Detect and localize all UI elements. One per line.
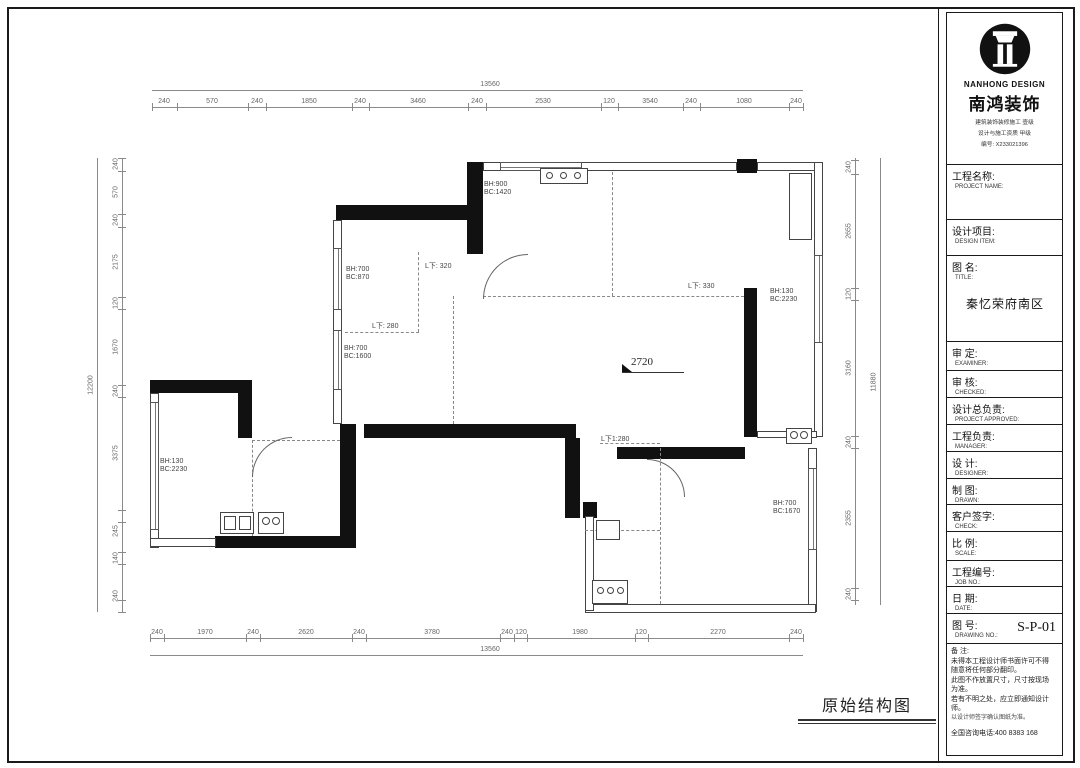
dimension-tick	[118, 522, 126, 523]
certification-lines: 建筑装饰装修施工 壹级设计与施工资质 甲级编号: X233021396	[947, 117, 1062, 148]
caption-underline	[798, 719, 936, 724]
dimension-tick	[803, 634, 804, 642]
dimension-value: 245	[113, 525, 120, 537]
window-beam-label: L下: 280	[372, 323, 398, 331]
field-label-en: TITLE:	[952, 275, 1058, 281]
dimension-value: 1980	[572, 629, 588, 636]
wall-solid	[340, 424, 356, 548]
wall-thin	[585, 604, 816, 613]
field-label-en: DESIGNER:	[952, 471, 1058, 477]
dimension-value: 2530	[535, 98, 551, 105]
dimension-value: 240	[113, 214, 120, 226]
dimension-tick	[851, 174, 859, 175]
fixture-outline	[239, 516, 251, 530]
dimension-line	[150, 655, 803, 656]
dimension-value: 1850	[301, 98, 317, 105]
dimension-value: 240	[113, 385, 120, 397]
column-logo-icon	[977, 21, 1033, 77]
fixture-outline	[789, 173, 812, 240]
dimension-value: 3460	[410, 98, 426, 105]
dimension-tick	[118, 510, 126, 511]
titleblock-row: 工程编号:JOB NO.:	[947, 561, 1062, 587]
dimension-tick	[486, 103, 487, 111]
titleblock-row: 审 定:EXAMINER:	[947, 342, 1062, 371]
wall-thin	[150, 538, 216, 547]
titleblock-row: 比 例:SCALE:	[947, 532, 1062, 561]
titleblock-row: 图 号:DRAWING NO.:S-P-01	[947, 614, 1062, 644]
dimension-tick	[266, 103, 267, 111]
fixture-circle	[560, 172, 567, 179]
dimension-value: 240	[113, 158, 120, 170]
dimension-value: 1670	[113, 339, 120, 355]
dimension-value: 240	[471, 98, 483, 105]
titleblock-row: 工程负责:MANAGER:	[947, 425, 1062, 452]
note-line: 未得本工程设计师书面许可不得	[951, 657, 1058, 667]
field-label-zh: 设 计:	[952, 455, 1058, 470]
fixture-outline	[596, 520, 620, 540]
field-label-zh: 审 定:	[952, 345, 1058, 360]
wall-solid	[336, 205, 483, 220]
dimension-tick	[851, 300, 859, 301]
fixture-circle	[607, 587, 614, 594]
dimension-value: 240	[790, 629, 802, 636]
titleblock-rows: 工程名称:PROJECT NAME:设计项目:DESIGN ITEM:图 名:T…	[947, 165, 1062, 644]
titleblock-notes: 备 注:未得本工程设计师书面许可不得随意将任何部分翻印。此图不作放置尺寸，尺寸按…	[947, 644, 1062, 755]
dimension-value: 2655	[846, 223, 853, 239]
field-label-en: PROJECT NAME:	[952, 184, 1058, 190]
fixture-circle	[272, 517, 280, 525]
window-beam-label: BH:130 BC:2230	[160, 458, 187, 474]
dimension-tick	[618, 103, 619, 111]
dimension-value: 1080	[736, 98, 752, 105]
dimension-value: 3375	[113, 445, 120, 461]
dimension-value: 240	[846, 436, 853, 448]
dimension-value: 570	[113, 186, 120, 198]
drawing-sheet: 原始结构图 BH:900 BC:1420BH:700 BC:870BH:700 …	[0, 0, 1080, 768]
dimension-value: 120	[846, 288, 853, 300]
dimension-tick	[118, 171, 126, 172]
dimension-tick	[851, 448, 859, 449]
dimension-tick	[683, 103, 684, 111]
dimension-value: 240	[501, 629, 513, 636]
note-line: 随意将任何部分翻印。	[951, 666, 1058, 676]
dimension-value: 240	[846, 588, 853, 600]
dimension-value: 3540	[642, 98, 658, 105]
window-centerline	[155, 403, 156, 529]
window-beam-label: L下1:280	[601, 436, 629, 444]
dimension-value: 3780	[424, 629, 440, 636]
drawing-caption: 原始结构图	[798, 692, 936, 724]
dimension-tick	[177, 103, 178, 111]
door-swing-arc	[252, 437, 292, 477]
window-centerline	[813, 469, 814, 549]
beam-dashed-line	[418, 252, 419, 332]
dimension-line	[150, 638, 803, 639]
line	[622, 372, 684, 373]
note-line: 全国咨询电话:400 8383 168	[951, 729, 1058, 739]
wall-solid	[238, 380, 252, 438]
dimension-line	[152, 90, 803, 91]
dimension-line	[152, 107, 803, 108]
titleblock-row: 日 期:DATE:	[947, 587, 1062, 614]
window-centerline	[819, 256, 820, 342]
titleblock-row: 客户签字:CHECK:	[947, 505, 1062, 532]
ceiling-height-label: 2720	[631, 356, 653, 368]
dimension-value: 12200	[88, 375, 95, 394]
dimension-value: 13560	[480, 646, 499, 653]
dimension-value: 240	[790, 98, 802, 105]
certification-line: 建筑装饰装修施工 壹级	[950, 117, 1059, 126]
dimension-tick	[366, 634, 367, 642]
field-label-zh: 制 图:	[952, 482, 1058, 497]
note-line: 此图不作放置尺寸，尺寸按现场	[951, 676, 1058, 686]
field-label-en: JOB NO.:	[952, 580, 1058, 586]
field-label-zh: 比 例:	[952, 535, 1058, 550]
dimension-tick	[118, 227, 126, 228]
fixture-outline	[224, 516, 236, 530]
titleblock-row: 工程名称:PROJECT NAME:	[947, 165, 1062, 220]
dimension-tick	[118, 612, 126, 613]
dimension-value: 2270	[710, 629, 726, 636]
note-line: 为准。	[951, 685, 1058, 695]
field-label-en: DRAWING NO.:	[952, 633, 998, 639]
field-label-zh: 客户签字:	[952, 508, 1058, 523]
window-beam-label: BH:700 BC:1600	[344, 345, 371, 361]
fixture-circle	[262, 517, 270, 525]
field-label-en: PROJECT APPROVED:	[952, 417, 1058, 423]
beam-dashed-line	[345, 332, 419, 333]
brand-name-zh: 南鸿装饰	[947, 90, 1062, 115]
dimension-tick	[851, 600, 859, 601]
title-block: NANHONG DESIGN 南鸿装饰 建筑装饰装修施工 壹级设计与施工资质 甲…	[946, 12, 1063, 756]
fixture-circle	[790, 431, 798, 439]
dimension-value: 120	[603, 98, 615, 105]
titleblock-row: 图 名:TITLE:秦忆荣府南区	[947, 256, 1062, 342]
field-label-en: EXAMINER:	[952, 361, 1058, 367]
field-label-zh: 图 名:	[952, 259, 1058, 274]
window-beam-label: L下: 320	[425, 263, 451, 271]
dimension-value: 1970	[197, 629, 213, 636]
dimension-tick	[118, 309, 126, 310]
field-label-en: CHECKED:	[952, 390, 1058, 396]
brand-name-en: NANHONG DESIGN	[947, 80, 1062, 89]
dimension-tick	[601, 103, 602, 111]
dimension-tick	[803, 103, 804, 111]
window-beam-label: BH:130 BC:2230	[770, 288, 797, 304]
fixture-circle	[574, 172, 581, 179]
drawing-number-value: S-P-01	[1017, 620, 1058, 636]
beam-dashed-line	[453, 296, 454, 424]
fixture-circle	[800, 431, 808, 439]
dimension-value: 2620	[298, 629, 314, 636]
dimension-value: 240	[354, 98, 366, 105]
titleblock-row: 设计项目:DESIGN ITEM:	[947, 220, 1062, 256]
field-label-en: DRAWN:	[952, 498, 1058, 504]
dimension-tick	[700, 103, 701, 111]
dimension-tick	[260, 634, 261, 642]
floor-plan: 原始结构图 BH:900 BC:1420BH:700 BC:870BH:700 …	[0, 0, 940, 768]
dimension-value: 240	[353, 629, 365, 636]
dimension-tick	[118, 564, 126, 565]
wall-solid	[737, 159, 757, 173]
beam-dashed-line	[252, 440, 340, 441]
wall-solid	[744, 288, 757, 437]
dimension-value: 11880	[871, 373, 878, 392]
dimension-tick	[164, 634, 165, 642]
titleblock-row: 制 图:DRAWN:	[947, 479, 1062, 505]
field-label-en: MANAGER:	[952, 444, 1058, 450]
field-label-en: DATE:	[952, 606, 1058, 612]
window-centerline	[338, 331, 339, 389]
wall-solid	[617, 447, 745, 459]
note-line: 若有不明之处，应立即通知设计	[951, 695, 1058, 705]
field-label-zh: 工程编号:	[952, 564, 1058, 579]
field-label-zh: 工程名称:	[952, 168, 1058, 183]
wall-thin	[757, 162, 822, 171]
dimension-value: 240	[151, 629, 163, 636]
dimension-tick	[468, 103, 469, 111]
dimension-value: 570	[206, 98, 218, 105]
field-label-en: DESIGN ITEM:	[952, 239, 1058, 245]
company-logo: NANHONG DESIGN 南鸿装饰 建筑装饰装修施工 壹级设计与施工资质 甲…	[947, 13, 1062, 165]
wall-solid	[215, 536, 356, 548]
field-label-zh: 审 核:	[952, 374, 1058, 389]
dimension-value: 120	[113, 297, 120, 309]
dimension-value: 240	[247, 629, 259, 636]
window-beam-label: BH:700 BC:1670	[773, 500, 800, 516]
field-label-zh: 设计项目:	[952, 223, 1058, 238]
wall-solid	[150, 380, 250, 393]
fixture-circle	[546, 172, 553, 179]
fixture-circle	[597, 587, 604, 594]
dimension-value: 240	[158, 98, 170, 105]
titleblock-row: 设 计:DESIGNER:	[947, 452, 1062, 479]
dimension-line	[97, 158, 98, 612]
certification-line: 设计与施工资质 甲级	[950, 128, 1059, 137]
beam-dashed-line	[612, 172, 613, 296]
project-title-value: 秦忆荣府南区	[952, 295, 1058, 312]
wall-solid	[467, 162, 483, 254]
dimension-tick	[248, 103, 249, 111]
dimension-tick	[648, 634, 649, 642]
dimension-value: 2175	[113, 254, 120, 270]
dimension-value: 3160	[846, 360, 853, 376]
dimension-value: 240	[685, 98, 697, 105]
dimension-line	[880, 158, 881, 605]
level-marker-icon	[622, 364, 632, 372]
dimension-value: 13560	[480, 81, 499, 88]
note-line: 以设计师签字确认图纸为准。	[951, 714, 1058, 724]
dimension-value: 120	[515, 629, 527, 636]
dimension-value: 240	[113, 590, 120, 602]
field-label-zh: 设计总负责:	[952, 401, 1058, 416]
window-beam-label: BH:700 BC:870	[346, 266, 369, 282]
dimension-value: 120	[635, 629, 647, 636]
dimension-tick	[118, 397, 126, 398]
dimension-value: 240	[251, 98, 263, 105]
window-centerline	[338, 249, 339, 309]
dimension-value: 140	[113, 552, 120, 564]
field-label-zh: 图 号:	[952, 617, 998, 632]
dimension-tick	[152, 103, 153, 111]
dimension-line	[855, 158, 856, 605]
caption-text: 原始结构图	[798, 692, 936, 716]
window-beam-label: BH:900 BC:1420	[484, 181, 511, 197]
fixture-circle	[617, 587, 624, 594]
titleblock-row: 审 核:CHECKED:	[947, 371, 1062, 398]
field-label-zh: 日 期:	[952, 590, 1058, 605]
note-line: 师。	[951, 704, 1058, 714]
field-label-en: CHECK:	[952, 524, 1058, 530]
field-label-en: SCALE:	[952, 551, 1058, 557]
dimension-tick	[352, 103, 353, 111]
dimension-tick	[369, 103, 370, 111]
certification-line: 编号: X233021396	[950, 139, 1059, 148]
window-beam-label: L下: 330	[688, 283, 714, 291]
dimension-value: 2355	[846, 510, 853, 526]
door-swing-arc	[483, 254, 528, 299]
dimension-value: 240	[846, 161, 853, 173]
field-label-zh: 工程负责:	[952, 428, 1058, 443]
wall-solid	[565, 438, 580, 518]
note-line: 备 注:	[951, 647, 1058, 657]
door-swing-arc	[647, 459, 685, 497]
wall-solid	[364, 424, 576, 438]
titleblock-row: 设计总负责:PROJECT APPROVED:	[947, 398, 1062, 425]
